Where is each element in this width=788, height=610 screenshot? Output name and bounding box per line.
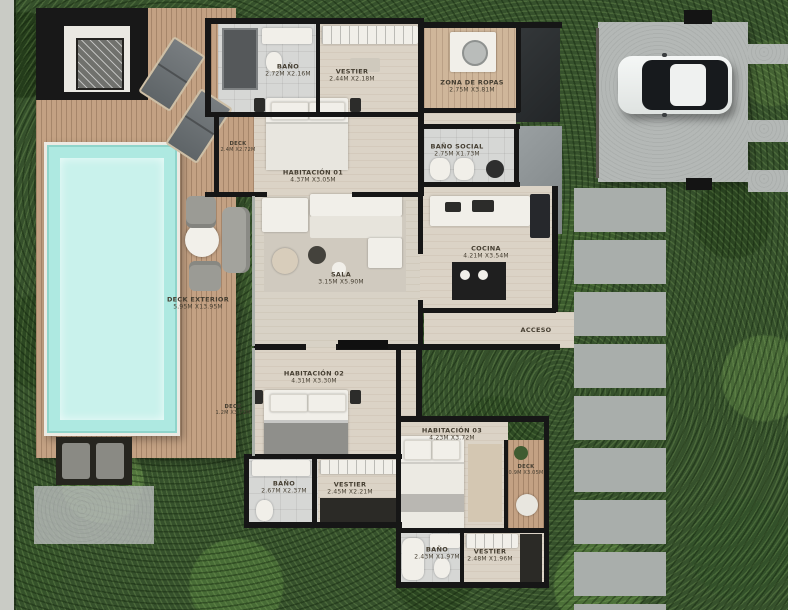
label-deck-lateral-02: DECK1.2M X3.72M bbox=[216, 404, 251, 416]
floor-plan: BAÑO2.72M X2.16M VESTIER2.44M X2.18M HAB… bbox=[0, 0, 788, 610]
lounge-cushion bbox=[62, 443, 90, 479]
walkway bbox=[574, 188, 666, 610]
vanity bbox=[252, 460, 310, 476]
wall bbox=[460, 532, 464, 582]
label-acceso: ACCESO bbox=[520, 326, 551, 334]
wall bbox=[420, 22, 562, 28]
lounge-cushion bbox=[96, 443, 124, 479]
wall bbox=[396, 582, 548, 588]
wall bbox=[420, 124, 520, 129]
car-roof bbox=[670, 64, 706, 106]
sliding-glass-door bbox=[252, 348, 255, 456]
washer-door bbox=[462, 40, 488, 66]
pillow bbox=[271, 102, 309, 120]
label-vestier-hab03: VESTIER2.48M X1.96M bbox=[467, 548, 513, 563]
shower bbox=[222, 28, 258, 90]
label-deck-lateral-01: DECK2.4M X2.72M bbox=[221, 141, 256, 153]
potted-plant bbox=[514, 446, 528, 460]
lawn-finger bbox=[748, 120, 788, 142]
duvet bbox=[266, 122, 348, 170]
roof-slab-dark bbox=[516, 22, 560, 122]
pool-shallow-shelf bbox=[60, 158, 164, 420]
outdoor-armchair bbox=[186, 196, 216, 228]
wall bbox=[416, 348, 422, 420]
label-habitacion-02: HABITACIÓN 024.31M X3.30M bbox=[284, 370, 344, 385]
label-sala: SALA3.15M X5.90M bbox=[318, 271, 364, 286]
closet bbox=[320, 460, 398, 474]
dining-table bbox=[262, 198, 308, 232]
outdoor-round-table bbox=[185, 223, 219, 257]
nightstand bbox=[254, 98, 265, 112]
sofa-chaise bbox=[368, 238, 402, 268]
label-cocina: COCINA4.21M X3.54M bbox=[463, 245, 509, 260]
closet-dark bbox=[320, 498, 398, 524]
wall bbox=[544, 416, 549, 588]
tv-console bbox=[338, 340, 388, 349]
label-bano-social: BAÑO SOCIAL2.75M X1.73M bbox=[430, 143, 483, 158]
counter-sink bbox=[460, 270, 470, 280]
label-vestier-hab02: VESTIER2.45M X2.21M bbox=[327, 481, 373, 496]
wall bbox=[516, 22, 521, 112]
driveway-gate bbox=[596, 28, 599, 178]
deck-strip-left-upper bbox=[218, 116, 254, 196]
side-path bbox=[0, 0, 14, 610]
label-vestier-principal: VESTIER2.44M X2.18M bbox=[329, 68, 375, 83]
nightstand bbox=[350, 390, 361, 404]
toilet bbox=[434, 558, 450, 578]
bed-throw bbox=[400, 494, 464, 512]
wall bbox=[418, 300, 423, 348]
wall bbox=[420, 108, 520, 113]
rug bbox=[468, 444, 502, 522]
pillow bbox=[270, 394, 308, 412]
garden-pad bbox=[34, 486, 154, 544]
outdoor-armchair bbox=[189, 261, 221, 291]
label-bano-principal: BAÑO2.72M X2.16M bbox=[265, 63, 311, 78]
car-mirror bbox=[662, 113, 667, 117]
counter-sink bbox=[478, 270, 488, 280]
toilet bbox=[256, 500, 273, 521]
side-table bbox=[272, 248, 298, 274]
wall bbox=[244, 454, 402, 459]
pillow bbox=[404, 440, 432, 460]
wall bbox=[254, 344, 306, 350]
sofa-back bbox=[310, 194, 402, 216]
wall bbox=[316, 24, 320, 116]
gate-post bbox=[684, 10, 712, 24]
deck-chair bbox=[516, 494, 538, 516]
sink bbox=[454, 158, 474, 180]
coffee-table bbox=[308, 246, 326, 264]
car-mirror bbox=[662, 53, 667, 57]
label-deck-exterior: DECK EXTERIOR5.95M X13.95M bbox=[167, 296, 229, 311]
side-path-edge bbox=[14, 0, 16, 610]
lounge-mattress bbox=[76, 38, 124, 90]
label-habitacion-01: HABITACIÓN 014.37M X3.05M bbox=[283, 169, 343, 184]
wall bbox=[552, 186, 558, 312]
closet bbox=[466, 534, 518, 548]
swimming-pool bbox=[44, 142, 180, 436]
wall bbox=[396, 528, 548, 533]
wall bbox=[396, 348, 401, 588]
lawn-finger bbox=[748, 44, 788, 64]
wall bbox=[418, 196, 423, 254]
wall bbox=[205, 18, 211, 117]
label-habitacion-03: HABITACIÓN 034.23M X3.72M bbox=[422, 427, 482, 442]
sliding-glass-door bbox=[252, 196, 255, 346]
wall bbox=[420, 308, 556, 313]
fridge bbox=[530, 194, 550, 238]
stove-counter bbox=[452, 262, 506, 300]
nightstand bbox=[350, 98, 361, 112]
closet-dark bbox=[520, 534, 542, 582]
toilet bbox=[486, 160, 504, 178]
wall bbox=[205, 18, 424, 24]
pillow bbox=[308, 394, 346, 412]
label-bano-hab03: BAÑO2.43M X1.97M bbox=[414, 546, 460, 561]
lawn-finger bbox=[748, 170, 788, 192]
label-zona-de-ropas: ZONA DE ROPAS2.75M X3.81M bbox=[440, 79, 503, 94]
sink bbox=[430, 158, 450, 180]
gate-post bbox=[686, 178, 712, 190]
outdoor-sofa bbox=[222, 207, 250, 273]
island-sink bbox=[472, 200, 494, 212]
sofa-seat bbox=[310, 216, 402, 238]
vanity bbox=[262, 28, 312, 44]
wall bbox=[244, 522, 402, 528]
closet bbox=[322, 26, 418, 44]
cooktop bbox=[445, 202, 461, 212]
wall bbox=[214, 112, 219, 197]
pillow bbox=[309, 102, 345, 120]
wall bbox=[418, 18, 424, 196]
label-deck-lateral-03: DECK0.9M X3.05M bbox=[509, 464, 544, 476]
car bbox=[618, 56, 732, 114]
wall bbox=[504, 440, 508, 532]
wall bbox=[420, 182, 520, 187]
label-bano-hab02: BAÑO2.67M X2.37M bbox=[261, 480, 307, 495]
duvet bbox=[264, 420, 348, 458]
wall bbox=[312, 458, 317, 522]
wall bbox=[514, 124, 519, 186]
wall bbox=[352, 192, 422, 197]
wall bbox=[244, 454, 249, 528]
pillow bbox=[432, 440, 460, 460]
